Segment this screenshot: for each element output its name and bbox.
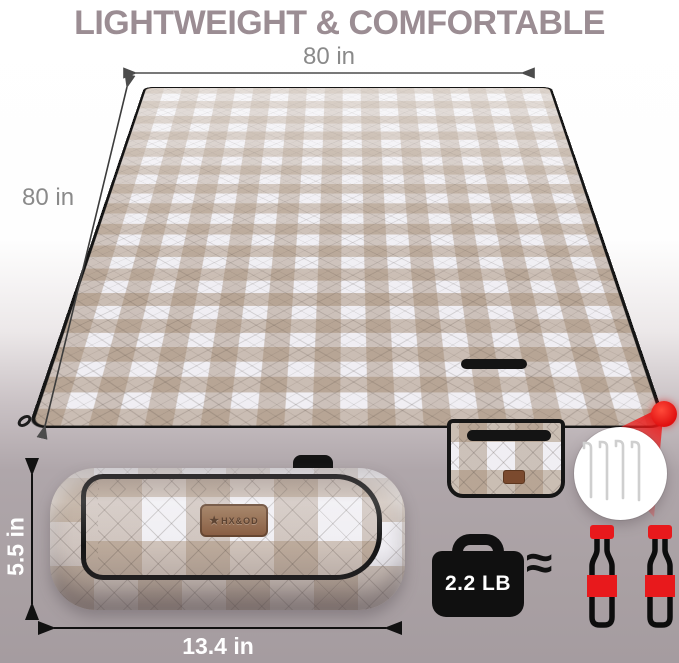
tent-stakes-icon (574, 427, 667, 520)
brand-label: ★ HX&OD (200, 504, 268, 537)
flap-snap-button (503, 470, 525, 484)
corner-highlight-dot (651, 401, 677, 427)
approximately-equal-symbol: ≈ (526, 540, 552, 588)
brand-name: HX&OD (221, 516, 259, 526)
soda-bottle-icon (641, 524, 679, 630)
page-title: LIGHTWEIGHT & COMFORTABLE (0, 4, 679, 43)
blanket-height-label: 80 in (22, 184, 74, 212)
product-infographic: ★ HX&OD 2.2 LB ≈ (0, 0, 679, 663)
star-icon: ★ (209, 514, 219, 527)
blanket-width-label: 80 in (136, 43, 522, 71)
picnic-blanket-perspective (20, 83, 675, 428)
blanket-strap (461, 359, 527, 369)
stakes-callout-circle (574, 427, 667, 520)
rolled-blanket: ★ HX&OD (50, 468, 405, 610)
flap-handle (467, 430, 551, 441)
blanket-surface (28, 87, 668, 428)
soda-bottle-icon (583, 524, 621, 630)
roll-height-label: 5.5 in (3, 487, 30, 607)
kettlebell-weight-icon: 2.2 LB (432, 551, 524, 617)
blanket-carry-flap (447, 419, 565, 498)
roll-width-label: 13.4 in (118, 633, 318, 660)
weight-value: 2.2 LB (445, 572, 511, 596)
